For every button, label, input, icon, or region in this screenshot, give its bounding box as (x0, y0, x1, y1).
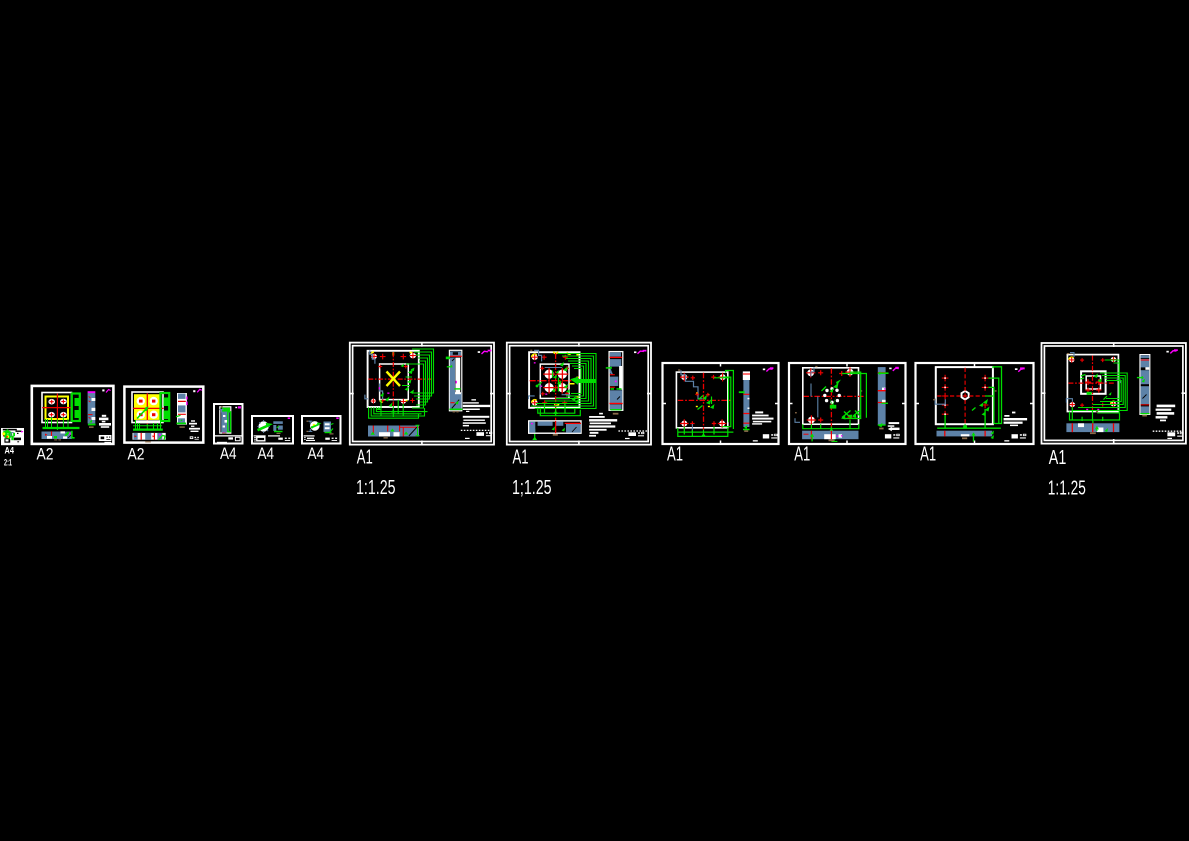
svg-text:A4: A4 (220, 445, 237, 463)
svg-text:1;1.25: 1;1.25 (512, 477, 552, 499)
svg-text:A1: A1 (357, 447, 373, 469)
svg-text:A4: A4 (5, 446, 15, 456)
svg-text:A1: A1 (920, 444, 936, 466)
svg-text:A4: A4 (308, 445, 325, 463)
svg-text:A1: A1 (1049, 447, 1067, 469)
svg-text:A2: A2 (37, 445, 54, 464)
svg-text:2:1: 2:1 (4, 458, 12, 468)
svg-text:A1: A1 (794, 444, 810, 466)
svg-text:A2: A2 (128, 445, 145, 464)
svg-text:1:1.25: 1:1.25 (356, 477, 396, 499)
svg-text:A1: A1 (667, 444, 683, 466)
svg-text:1:1.25: 1:1.25 (1048, 478, 1086, 500)
svg-text:A4: A4 (258, 445, 275, 463)
svg-text:A1: A1 (513, 447, 529, 469)
